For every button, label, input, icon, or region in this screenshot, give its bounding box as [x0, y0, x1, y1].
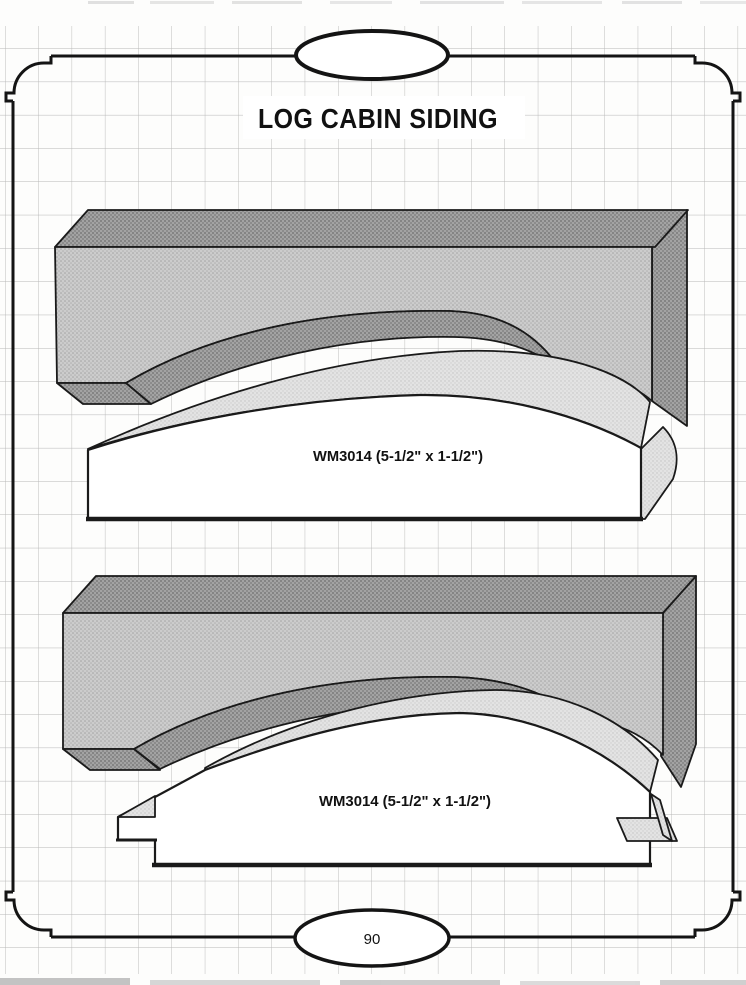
- top-face: [55, 210, 688, 247]
- page-title: LOG CABIN SIDING: [258, 103, 498, 134]
- top-ellipse: [296, 31, 448, 79]
- profile-drawing-1: WM3014 (5-1/2" x 1-1/2"): [55, 210, 688, 519]
- catalog-page: LOG CABIN SIDING WM3014 (5-1/2" x 1-1/2"…: [0, 0, 746, 985]
- top-face: [63, 576, 696, 613]
- profile-label-2: WM3014 (5-1/2" x 1-1/2"): [319, 794, 491, 810]
- scan-artifact-bottom: [0, 978, 746, 985]
- profile-label-1: WM3014 (5-1/2" x 1-1/2"): [313, 449, 483, 465]
- page-number: 90: [364, 931, 381, 948]
- profile-drawing-2: WM3014 (5-1/2" x 1-1/2"): [63, 576, 696, 865]
- scan-artifact-top: [88, 1, 746, 4]
